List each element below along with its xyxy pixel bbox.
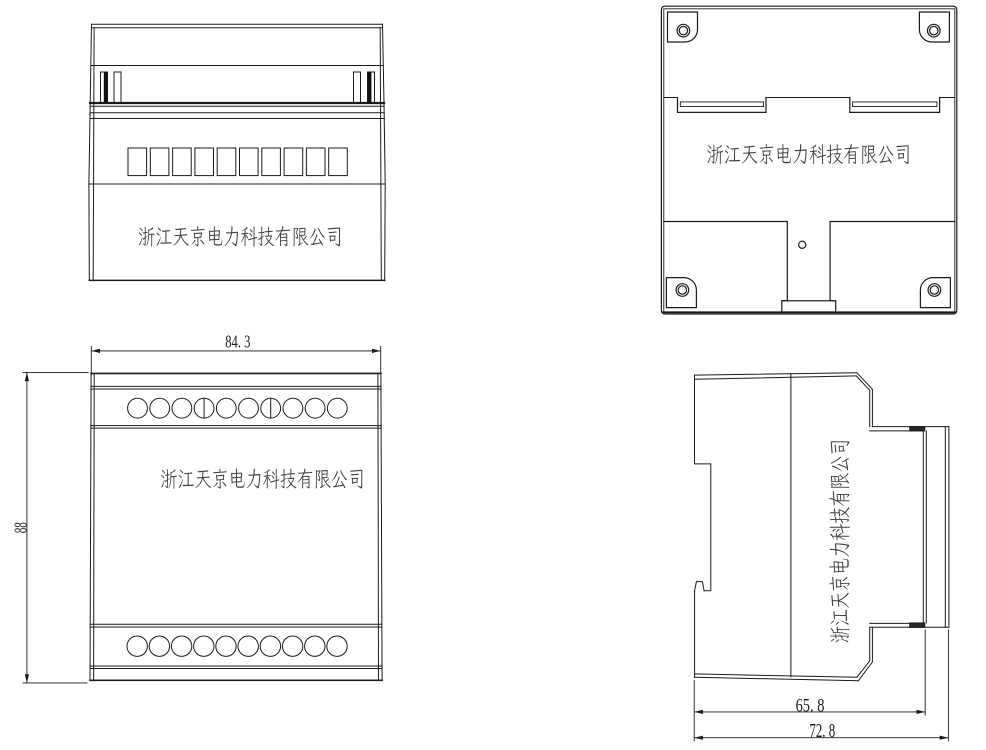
svg-text:84. 3: 84. 3 <box>225 332 250 352</box>
svg-text:65. 8: 65. 8 <box>796 695 825 716</box>
svg-text:72. 8: 72. 8 <box>809 719 835 741</box>
svg-text:88: 88 <box>12 522 31 533</box>
